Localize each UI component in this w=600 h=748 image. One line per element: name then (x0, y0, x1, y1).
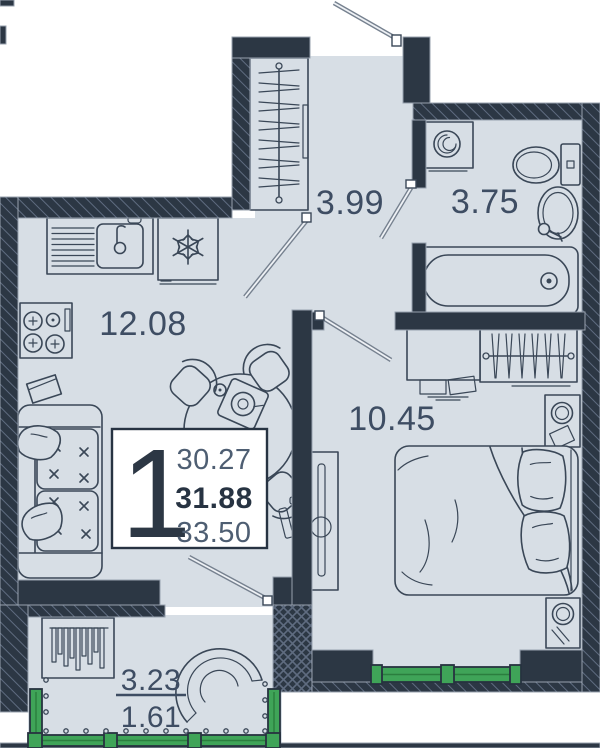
wall-bedroom-window-right (520, 650, 582, 682)
washing-machine (423, 122, 473, 171)
wall-wardrobe-side (232, 58, 250, 210)
nightstand (545, 395, 580, 448)
wall-top-bathroom (413, 103, 600, 120)
wall-entrance-block (403, 37, 430, 103)
wall-bathroom-left-upper (412, 120, 426, 188)
hallway-wardrobe (250, 58, 308, 210)
unit-total-area: 31.88 (175, 482, 253, 515)
wall-bedroom-window-left (312, 650, 373, 682)
bedroom-window (371, 665, 521, 684)
bedroom-area-label: 10.45 (348, 400, 436, 438)
kitchen-counter (47, 216, 153, 274)
unit-area-with-summer: 33.50 (176, 517, 251, 549)
wall-top-kitchen (0, 197, 232, 218)
wall-left (0, 197, 18, 605)
tv-stand (311, 452, 338, 590)
wall-bathroom-left-lower (412, 243, 426, 315)
balcony-area-full-label: 3.23 (121, 664, 181, 697)
nightstand (546, 598, 580, 648)
hallway-area-label: 3.99 (316, 184, 384, 222)
floor-plan-drawing: 12.08 3.99 3.75 10.45 3.23 1.61 1 30.27 … (0, 0, 600, 748)
bed-pillow (520, 510, 571, 574)
wall-junction-crosshatch (273, 605, 312, 692)
bed-pillow (516, 449, 567, 513)
balcony-area-reduced-label: 1.61 (121, 701, 181, 734)
wall-right (582, 103, 600, 692)
wall-balcony-door-stub (273, 577, 292, 605)
wall-balcony-left (0, 605, 28, 712)
wall-living-bedroom (292, 310, 312, 607)
bathtub (415, 247, 578, 314)
toilet (513, 144, 580, 185)
wall-living-bottom (18, 580, 160, 605)
bedroom-wardrobe (480, 328, 577, 386)
bathroom-area-label: 3.75 (451, 183, 519, 221)
wall-strip-living-bottom (18, 605, 165, 617)
unit-info-box: 1 30.27 31.88 33.50 (112, 423, 267, 564)
sofa (14, 405, 102, 578)
fridge (158, 218, 218, 284)
floor-plan-canvas: 12.08 3.99 3.75 10.45 3.23 1.61 1 30.27 … (0, 0, 600, 748)
wall-wardrobe-top (232, 37, 310, 58)
wall-bathroom-bottom (395, 312, 585, 330)
bed (395, 446, 578, 595)
kitchen-living-area-label: 12.08 (99, 305, 187, 343)
entrance-door (334, 3, 401, 46)
unit-living-area: 30.27 (176, 444, 251, 476)
